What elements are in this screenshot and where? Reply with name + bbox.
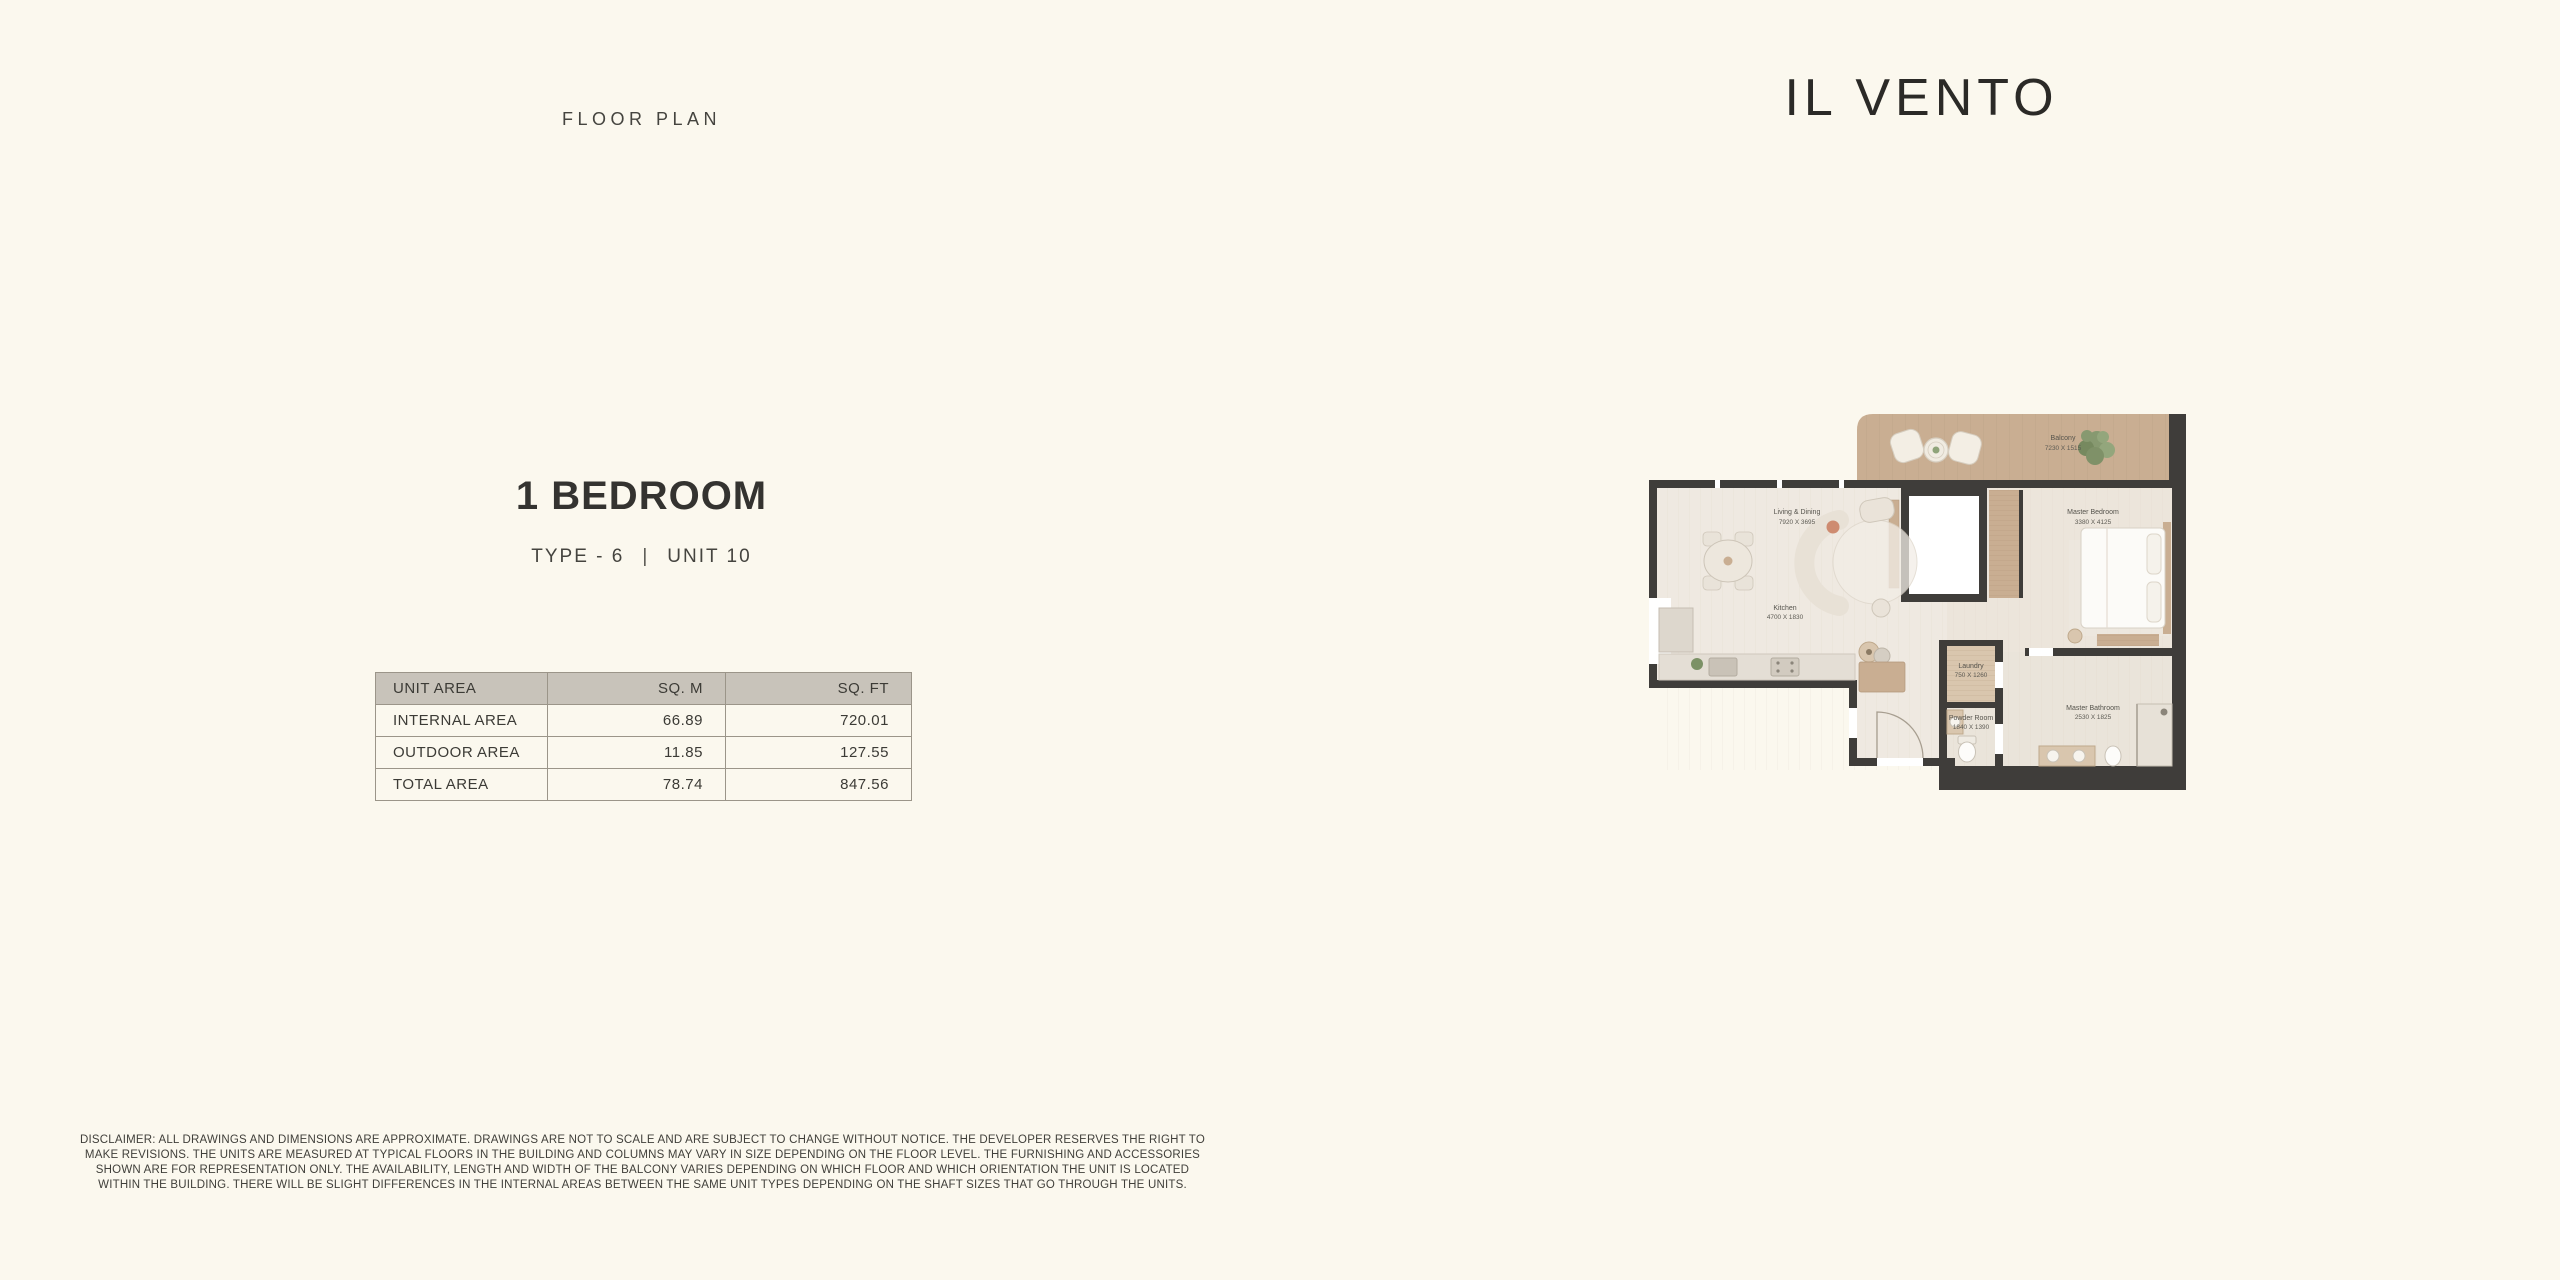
row-label: INTERNAL AREA (376, 705, 548, 737)
foot-bench (2097, 634, 2159, 646)
sink (1709, 658, 1737, 676)
brochure-page: FLOOR PLAN IL VENTO 1 BEDROOM TYPE - 6|U… (0, 0, 2560, 1280)
table-row: INTERNAL AREA 66.89 720.01 (376, 705, 912, 737)
shower-head (2161, 709, 2168, 716)
fridge (1659, 608, 1693, 652)
basin (2047, 750, 2059, 762)
col-header-sqft: SQ. FT (725, 673, 911, 705)
unit-number: UNIT 10 (667, 546, 751, 567)
bathroom-door-gap (2029, 648, 2053, 656)
kitchen-counter (1659, 654, 1855, 680)
floor-plan-image: Balcony 7230 X 1515 (1645, 410, 2190, 800)
room-label-balcony: Balcony (2051, 435, 2076, 442)
basin (2073, 750, 2085, 762)
table-row: OUTDOOR AREA 11.85 127.55 (376, 737, 912, 769)
row-sqft: 720.01 (725, 705, 911, 737)
pouf (2068, 629, 2082, 643)
row-label: OUTDOOR AREA (376, 737, 548, 769)
unit-title: 1 BEDROOM (0, 474, 1283, 519)
floor-plan-heading: FLOOR PLAN (0, 109, 1283, 130)
area-table: UNIT AREA SQ. M SQ. FT INTERNAL AREA 66.… (375, 672, 912, 801)
room-dims-bedroom: 3380 X 4125 (2075, 519, 2112, 526)
window-mullion (1777, 480, 1782, 488)
plant-icon (1691, 658, 1703, 670)
row-sqft: 127.55 (725, 737, 911, 769)
room-dims-powder: 1840 X 1390 (1953, 724, 1990, 731)
dining-set (1703, 532, 1753, 590)
col-header-unit-area: UNIT AREA (376, 673, 548, 705)
row-sqm: 78.74 (548, 769, 726, 801)
room-label-living: Living & Dining (1774, 509, 1821, 516)
table-row: TOTAL AREA 78.74 847.56 (376, 769, 912, 801)
room-dims-balcony: 7230 X 1515 (2045, 445, 2082, 452)
balcony-table (1924, 438, 1948, 462)
window-mullion (1715, 480, 1720, 488)
toilet (2105, 746, 2121, 766)
disclaimer-text: DISCLAIMER: ALL DRAWINGS AND DIMENSIONS … (80, 1133, 1205, 1193)
left-window (1649, 598, 1657, 664)
room-dims-kitchen: 4700 X 1830 (1767, 614, 1804, 621)
pillow (2147, 534, 2161, 574)
balcony-end-wall (2169, 414, 2186, 480)
room-dims-bathroom: 2530 X 1825 (2075, 714, 2112, 721)
floor-plan-svg: Balcony 7230 X 1515 (1645, 410, 2190, 800)
subtitle-divider: | (642, 546, 649, 567)
room-dims-laundry: 750 X 1260 (1955, 672, 1988, 679)
entry-door-gap (1877, 758, 1923, 766)
table-header-row: UNIT AREA SQ. M SQ. FT (376, 673, 912, 705)
room-label-kitchen: Kitchen (1773, 605, 1796, 612)
room-dims-living: 7920 X 3695 (1779, 519, 1816, 526)
row-label: TOTAL AREA (376, 769, 548, 801)
unit-type: TYPE - 6 (531, 546, 624, 567)
bedroom-furniture (2068, 522, 2171, 646)
row-sqm: 11.85 (548, 737, 726, 769)
room-label-laundry: Laundry (1958, 663, 1984, 670)
ottoman (1872, 599, 1890, 617)
room-label-powder: Powder Room (1949, 715, 1994, 722)
room-label-bedroom: Master Bedroom (2067, 509, 2119, 516)
brand-logo: IL VENTO (1283, 68, 2560, 128)
stove (1771, 658, 1799, 676)
wardrobe (1989, 490, 2023, 598)
side-window (1849, 708, 1857, 738)
balcony-deck: Balcony 7230 X 1515 (1857, 414, 2186, 480)
toilet (1959, 742, 1976, 762)
laundry-door-gap (1995, 662, 2003, 688)
row-sqm: 66.89 (548, 705, 726, 737)
unit-subtitle: TYPE - 6|UNIT 10 (0, 546, 1283, 568)
round-rug (1833, 520, 1917, 604)
room-label-bathroom: Master Bathroom (2066, 705, 2120, 712)
row-sqft: 847.56 (725, 769, 911, 801)
pillow (2147, 582, 2161, 622)
powder-door-gap (1995, 724, 2003, 754)
window-mullion (1839, 480, 1844, 488)
accent-cushion (1827, 521, 1840, 534)
col-header-sqm: SQ. M (548, 673, 726, 705)
